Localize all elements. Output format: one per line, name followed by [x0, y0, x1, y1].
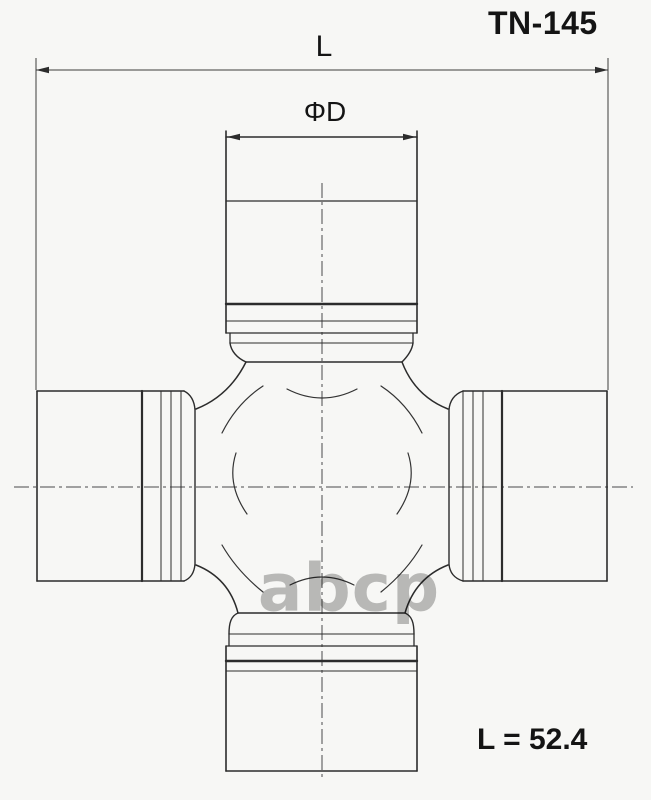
part-number: TN-145 — [488, 5, 618, 42]
arrowhead — [595, 67, 608, 73]
right-bearing-cup — [449, 391, 607, 581]
catalog-drawing-page: TN-145 L ΦD L = 52.4 D = 20.06 abcp — [0, 0, 651, 800]
spec-values-block: L = 52.4 D = 20.06 — [477, 655, 608, 800]
spec-length: L = 52.4 — [477, 723, 608, 757]
watermark: abcp — [258, 550, 440, 627]
dimension-label-length: L — [294, 30, 354, 64]
arrowhead — [36, 67, 49, 73]
left-bearing-cup — [37, 391, 195, 581]
dimension-label-diameter: ΦD — [290, 96, 360, 128]
